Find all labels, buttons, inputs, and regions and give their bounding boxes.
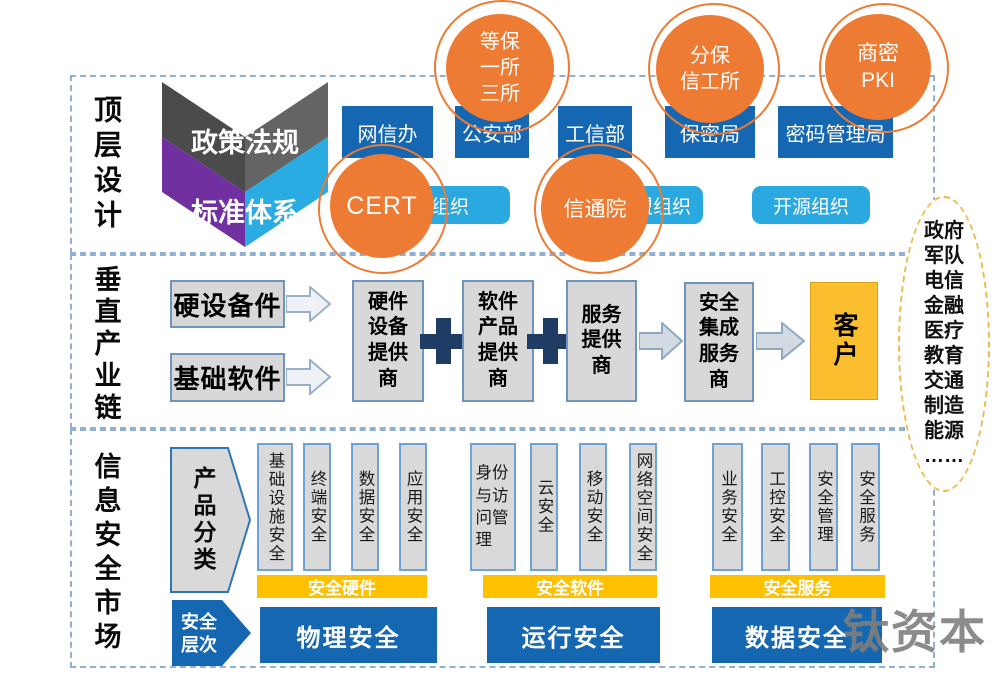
chain-box-hardware-vendor: 硬件 设备 提供 商	[352, 280, 424, 402]
plus-icon	[420, 318, 466, 364]
section-middle-title: 垂直产业链	[88, 265, 124, 425]
product-column: 终端安全	[303, 443, 331, 571]
policy-band-label: 政策法规	[164, 121, 326, 160]
layer-bar-physical: 物理安全	[260, 607, 437, 663]
product-column: 移动安全	[579, 443, 607, 571]
watermark: 钛资本	[843, 596, 987, 662]
industry-diagram: 顶层设计 垂直产业链 信息安全市场 政策法规 标准体系 网信办 公安部 工信部 …	[0, 0, 1000, 685]
circle-shangmi-pki: 商密 PKI	[825, 14, 931, 120]
circle-fenbao: 分保 信工所	[656, 15, 764, 123]
product-column: 身份与访问管理	[470, 443, 516, 571]
circle-cert: CERT	[330, 154, 434, 258]
product-column: 基础设施安全	[257, 443, 293, 571]
arrow-right-icon	[286, 286, 332, 322]
product-column: 安全管理	[809, 443, 838, 571]
chain-box-software-vendor: 软件 产品 提供 商	[462, 280, 534, 402]
input-box-basic-software: 基础软件	[170, 353, 285, 402]
category-bar-hardware: 安全硬件	[257, 575, 427, 598]
arrow-right-icon	[756, 322, 806, 360]
input-box-hardware-components: 硬设备件	[170, 280, 285, 328]
product-axis-label: 产品分类	[176, 452, 230, 588]
product-column: 工控安全	[761, 443, 790, 571]
product-column: 安全服务	[851, 443, 880, 571]
circle-xintongyuan: 信通院	[541, 154, 649, 262]
arrow-right-icon	[639, 322, 684, 360]
category-bar-service: 安全服务	[710, 575, 885, 598]
circle-dengbao: 等保 一所 三所	[446, 14, 554, 122]
product-column: 业务安全	[712, 443, 743, 571]
chain-box-integrator: 安全 集成 服务 商	[684, 282, 754, 402]
product-column: 网络空间安全	[629, 443, 657, 571]
section-top-title: 顶层设计	[88, 95, 124, 235]
customer-types-ellipse: 政府 军队 电信 金融 医疗 教育 交通 制造 能源 ……	[898, 196, 990, 492]
product-column: 数据安全	[351, 443, 379, 571]
product-column: 云安全	[530, 443, 558, 571]
arrow-right-icon	[286, 359, 332, 395]
standard-band-label: 标准体系	[164, 191, 326, 230]
section-bottom-title: 信息安全市场	[88, 448, 124, 660]
layer-bar-operation: 运行安全	[487, 607, 660, 663]
customer-box: 客户	[810, 282, 878, 400]
org-box-kaiyuan: 开源组织	[752, 186, 870, 224]
layer-axis-label: 安全 层次	[174, 604, 224, 664]
product-column-label: 身份与访问管理	[476, 462, 511, 551]
category-bar-software: 安全软件	[483, 575, 657, 598]
chain-box-service-vendor: 服务 提供 商	[566, 280, 637, 402]
product-column: 应用安全	[399, 443, 427, 571]
